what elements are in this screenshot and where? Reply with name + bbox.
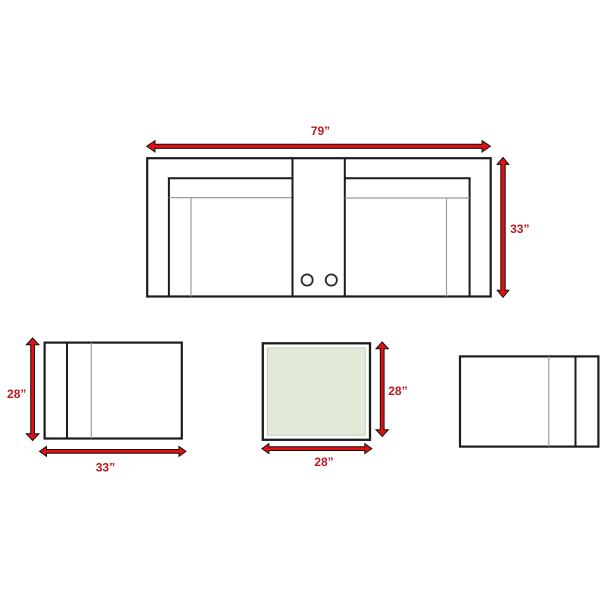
svg-text:33”: 33” xyxy=(96,460,115,474)
svg-text:28”: 28” xyxy=(7,387,26,401)
svg-text:28”: 28” xyxy=(388,384,407,398)
svg-text:79”: 79” xyxy=(311,124,330,138)
svg-text:28”: 28” xyxy=(314,455,333,469)
svg-text:33”: 33” xyxy=(510,222,529,236)
